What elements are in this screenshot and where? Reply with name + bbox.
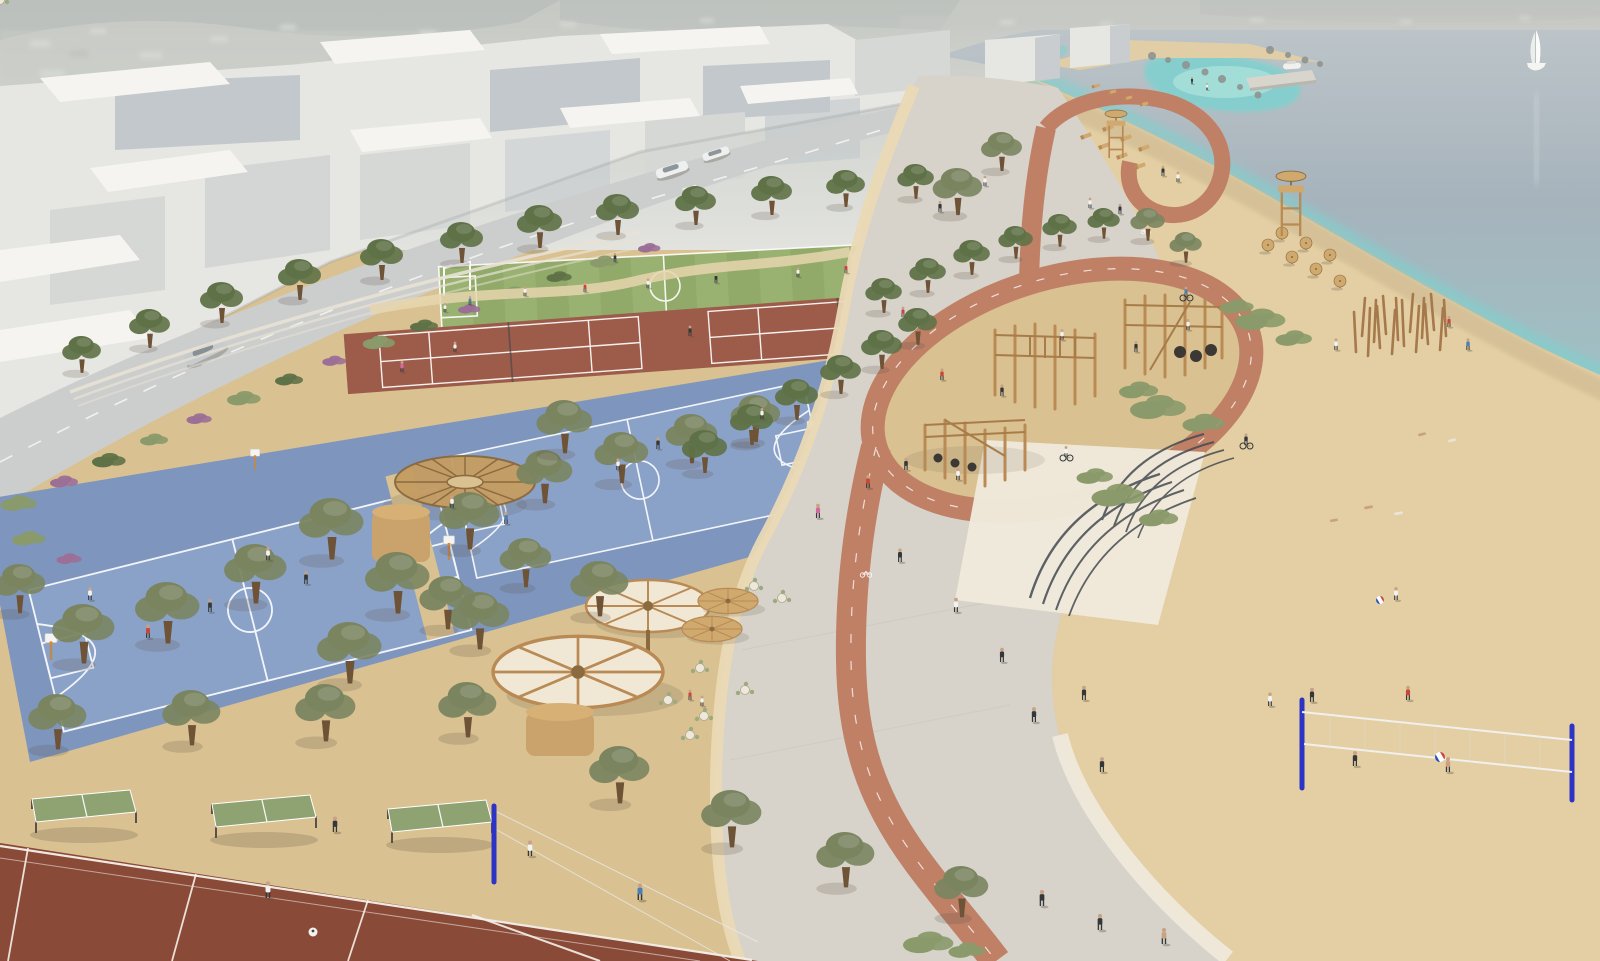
- kiosk: [526, 703, 594, 756]
- beach-ball: [1435, 752, 1445, 762]
- soccer-ball: [309, 928, 318, 937]
- beach-ball: [1376, 596, 1384, 604]
- scene-canvas: [0, 0, 1600, 961]
- rendered-image: [0, 0, 1600, 961]
